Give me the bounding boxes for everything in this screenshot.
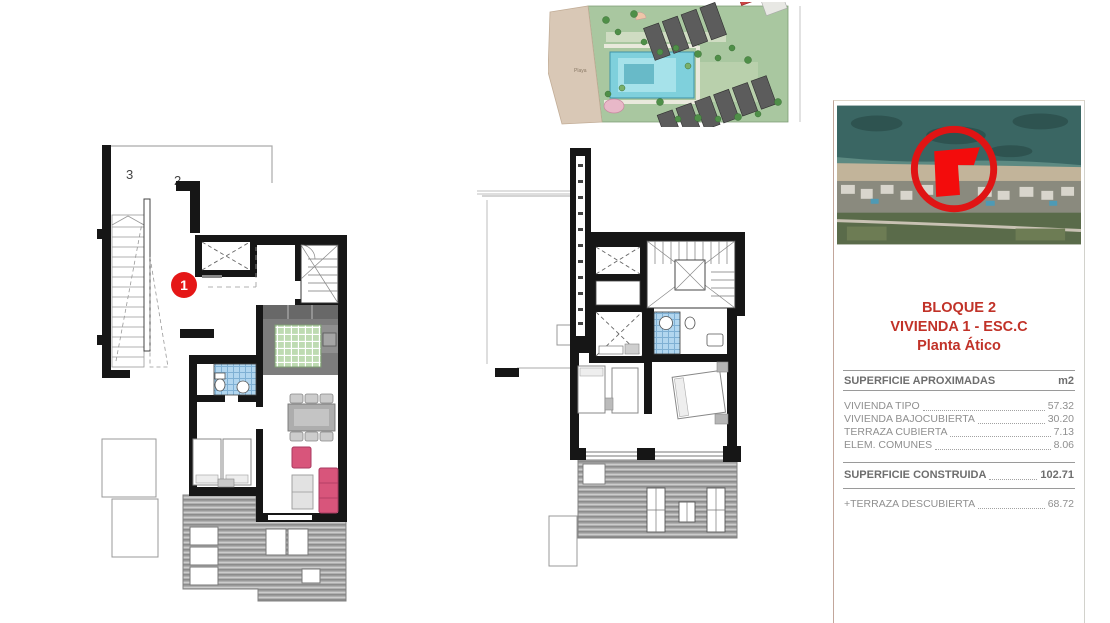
block-title: BLOQUE 2 [834, 299, 1084, 318]
surface-value: 7.13 [1054, 426, 1074, 439]
toilet [215, 379, 225, 391]
sink [237, 381, 249, 393]
dot-leader [923, 410, 1045, 411]
nightstand [218, 479, 234, 487]
nightstand [605, 398, 613, 410]
bedroom [193, 439, 251, 487]
sink [660, 317, 673, 330]
site-plan-map: Playa [548, 2, 803, 127]
surface-value: 8.06 [1054, 439, 1074, 452]
surface-value: 57.32 [1048, 400, 1074, 413]
surface-total-value: 102.71 [1040, 469, 1074, 482]
surface-row: VIVIENDA TIPO 57.32 [843, 400, 1075, 413]
terrace-table [583, 464, 605, 484]
surface-total-row: SUPERFICIE CONSTRUIDA 102.71 [843, 463, 1075, 488]
beach-label: Playa [574, 68, 587, 74]
kitchen [263, 305, 338, 375]
highlighted-block [737, 2, 759, 6]
floor-plan-bajocubierta [477, 146, 777, 606]
bathroom [654, 312, 723, 354]
plan-sheet: Playa [0, 0, 1110, 623]
elevator-shaft-upper [596, 247, 640, 274]
unit-title: VIVIENDA 1 - ESC.C [834, 318, 1084, 337]
terrace-planters [102, 439, 158, 557]
surface-extra-row: +TERRAZA DESCUBIERTA 68.72 [843, 498, 1075, 511]
bedroom-right [672, 362, 728, 424]
surface-total-label: SUPERFICIE CONSTRUIDA [844, 469, 986, 482]
divider [843, 488, 1075, 489]
nightstand [717, 362, 728, 372]
surface-header-unit: m2 [1058, 375, 1074, 387]
surface-label: ELEM. COMUNES [844, 439, 932, 452]
internal-staircase [301, 245, 338, 303]
floor-plan-atico: 3 2 [96, 139, 348, 603]
pink-feature [604, 99, 624, 113]
surface-rows: VIVIENDA TIPO 57.32 VIVIENDA BAJOCUBIERT… [843, 400, 1075, 452]
nightstand [715, 414, 728, 424]
bathroom [214, 364, 256, 395]
info-panel: BLOQUE 2 VIVIENDA 1 - ESC.C Planta Ático… [833, 100, 1085, 623]
roof-ladder [576, 156, 585, 336]
dot-leader [950, 436, 1050, 437]
bed [612, 368, 638, 413]
dining-set [288, 394, 335, 441]
sofa [319, 468, 338, 513]
surface-extra-value: 68.72 [1048, 498, 1074, 511]
unit-label-3: 3 [126, 167, 133, 182]
unit-marker-label: 1 [180, 277, 188, 293]
elevator-shaft [202, 242, 250, 270]
shower [707, 334, 723, 346]
surface-row: VIVIENDA BAJOCUBIERTA 30.20 [843, 413, 1075, 426]
surface-row: ELEM. COMUNES 8.06 [843, 439, 1075, 452]
surface-label: VIVIENDA TIPO [844, 400, 920, 413]
armchair [292, 447, 311, 468]
divider [843, 390, 1075, 391]
terrace-wall-stub [495, 368, 519, 377]
open-terrace-outline [477, 191, 578, 368]
surface-label: TERRAZA CUBIERTA [844, 426, 947, 439]
surface-table: SUPERFICIE APROXIMADAS m2 VIVIENDA TIPO … [843, 370, 1075, 511]
dot-leader [935, 449, 1050, 450]
lounge-set [292, 447, 338, 513]
terrace-planter [549, 516, 577, 566]
surface-value: 30.20 [1048, 413, 1074, 426]
surface-extra-label: +TERRAZA DESCUBIERTA [844, 498, 975, 511]
aerial-photo [837, 105, 1081, 245]
toilet [685, 317, 695, 329]
dot-leader [978, 508, 1045, 509]
main-staircase [647, 241, 735, 308]
closet [599, 346, 623, 354]
surface-header-label: SUPERFICIE APROXIMADAS [844, 375, 995, 387]
unit-marker: 1 [171, 272, 197, 298]
surface-label: VIVIENDA BAJOCUBIERTA [844, 413, 975, 426]
surface-header: SUPERFICIE APROXIMADAS m2 [843, 371, 1075, 390]
common-staircase [112, 199, 168, 367]
surface-row: TERRAZA CUBIERTA 7.13 [843, 426, 1075, 439]
floor-title: Planta Ático [834, 337, 1084, 356]
dot-leader [978, 423, 1045, 424]
dot-leader [989, 479, 1037, 480]
living-window [268, 515, 312, 520]
panel-title: BLOQUE 2 VIVIENDA 1 - ESC.C Planta Ático [834, 299, 1084, 356]
storage-room [596, 281, 640, 305]
